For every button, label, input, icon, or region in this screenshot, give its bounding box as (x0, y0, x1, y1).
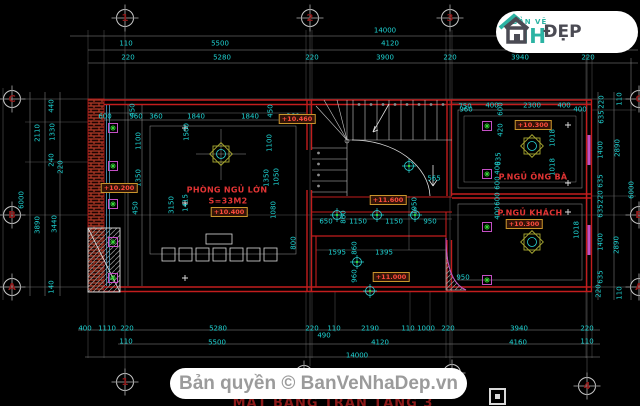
stair-direction-arrows (373, 104, 437, 186)
furniture (162, 234, 277, 261)
copyright-text: Bản quyền © BanVeNhaDep.vn (179, 373, 458, 395)
north-marker-icon (489, 388, 506, 405)
ceiling-star-ornament-icon (521, 231, 544, 254)
ceiling-lines (104, 105, 582, 286)
curved-duct (446, 238, 466, 290)
copyright-watermark: Bản quyền © BanVeNhaDep.vn (170, 368, 467, 399)
walls (88, 100, 592, 292)
house-icon (496, 11, 534, 47)
brand-logo: BẢN VẼ NH ĐẸP (496, 11, 638, 53)
floor-plan-drawing (0, 0, 640, 406)
brand-name-right: ĐẸP (543, 22, 581, 42)
ceiling-star-ornament-icon (521, 135, 544, 158)
cad-floor-plan-screenshot: 1400011055004120220528022039002203940220… (0, 0, 640, 406)
staircase (312, 100, 452, 250)
